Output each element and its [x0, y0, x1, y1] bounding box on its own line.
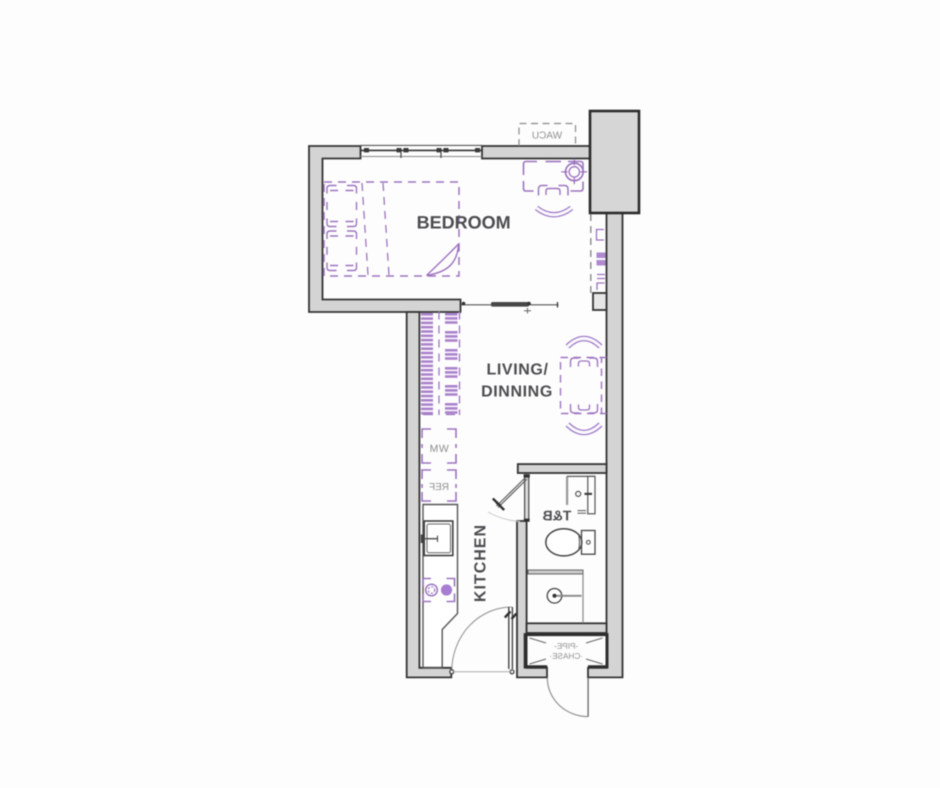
svg-text:·CHASE·: ·CHASE· [549, 652, 583, 661]
svg-text:MW: MW [430, 443, 450, 455]
svg-text:-PIPE-: -PIPE- [554, 642, 578, 651]
svg-text:BEDROOM: BEDROOM [417, 212, 511, 232]
svg-text:DINNING: DINNING [481, 384, 553, 401]
svg-text:LIVING/: LIVING/ [487, 362, 549, 379]
svg-text:KITCHEN: KITCHEN [472, 524, 489, 602]
svg-text:T&B: T&B [543, 507, 572, 523]
svg-text:WACU: WACU [532, 130, 562, 141]
svg-text:REF: REF [429, 482, 449, 493]
